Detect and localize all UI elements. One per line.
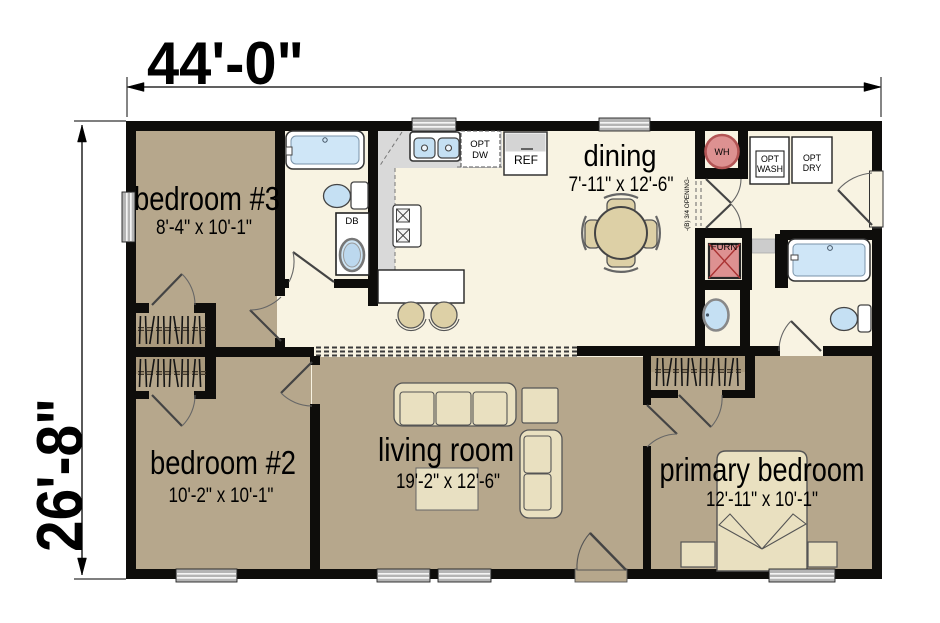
svg-text:DB: DB xyxy=(345,216,358,227)
svg-text:OPT: OPT xyxy=(470,139,490,150)
svg-text:primary bedroom: primary bedroom xyxy=(660,451,865,488)
svg-text:8'-4" x 10'-1": 8'-4" x 10'-1" xyxy=(156,216,252,239)
svg-text:REF: REF xyxy=(514,153,538,167)
svg-text:19'-2" x 12'-6": 19'-2" x 12'-6" xyxy=(396,470,500,493)
svg-text:10'-2" x 10'-1": 10'-2" x 10'-1" xyxy=(169,484,274,507)
svg-text:bedroom #3: bedroom #3 xyxy=(134,180,280,217)
svg-text:FURN: FURN xyxy=(711,242,738,253)
svg-text:44'-0": 44'-0" xyxy=(147,30,304,97)
svg-text:WASH: WASH xyxy=(757,164,783,174)
svg-text:DRY: DRY xyxy=(803,163,822,173)
svg-text:12'-11" x 10'-1": 12'-11" x 10'-1" xyxy=(706,488,818,511)
svg-text:7'-11" x 12'-6": 7'-11" x 12'-6" xyxy=(569,173,674,196)
svg-text:dining: dining xyxy=(584,138,657,173)
svg-text:OPT: OPT xyxy=(761,154,780,164)
svg-text:bedroom #2: bedroom #2 xyxy=(150,444,296,481)
svg-text:WH: WH xyxy=(715,147,730,157)
svg-text:26'-8": 26'-8" xyxy=(23,398,96,552)
svg-text:DW: DW xyxy=(472,150,488,161)
svg-text:living room: living room xyxy=(378,431,514,468)
svg-text:OPT: OPT xyxy=(803,153,822,163)
svg-text:-(B) 3/4 OPENING-: -(B) 3/4 OPENING- xyxy=(684,177,691,231)
